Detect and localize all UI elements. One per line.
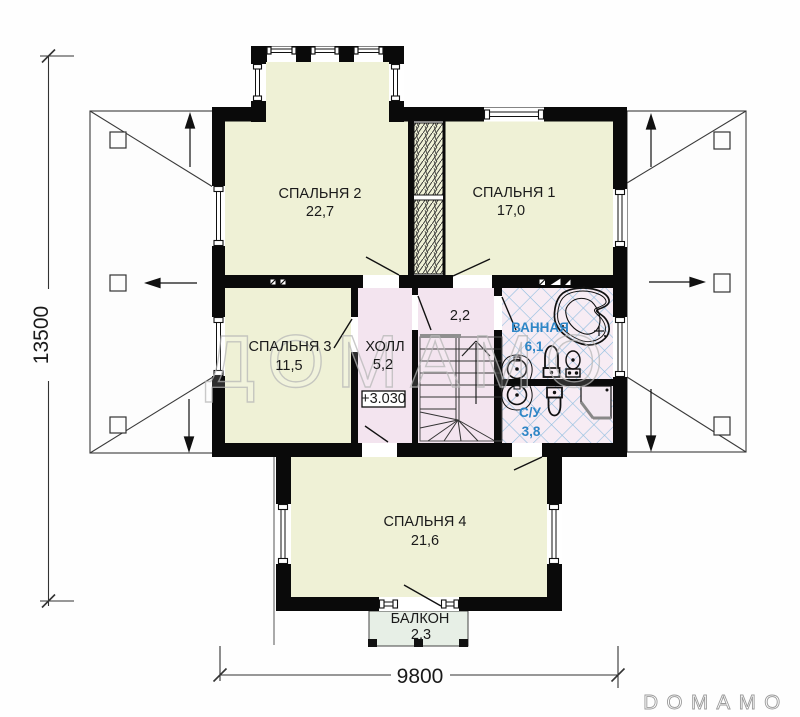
svg-text:СПАЛЬНЯ 1: СПАЛЬНЯ 1 [473, 185, 556, 201]
svg-text:+3.030: +3.030 [361, 391, 406, 407]
svg-text:БАЛКОН: БАЛКОН [391, 611, 450, 627]
svg-text:17,0: 17,0 [497, 203, 525, 219]
svg-text:6,1: 6,1 [525, 339, 544, 354]
svg-text:3,8: 3,8 [522, 424, 541, 439]
svg-text:СПАЛЬНЯ 2: СПАЛЬНЯ 2 [279, 186, 362, 202]
svg-text:С/У: С/У [519, 405, 542, 420]
svg-text:ХОЛЛ: ХОЛЛ [365, 339, 404, 355]
svg-text:2,2: 2,2 [450, 308, 470, 324]
svg-text:ВАННАЯ: ВАННАЯ [511, 320, 569, 335]
svg-text:22,7: 22,7 [306, 204, 334, 220]
svg-text:9800: 9800 [397, 665, 444, 688]
svg-text:13500: 13500 [30, 306, 53, 364]
svg-text:21,6: 21,6 [411, 533, 439, 549]
svg-text:2,3: 2,3 [411, 627, 431, 643]
svg-text:5,2: 5,2 [373, 357, 393, 373]
svg-text:11,5: 11,5 [275, 358, 302, 374]
svg-text:СПАЛЬНЯ 4: СПАЛЬНЯ 4 [384, 514, 467, 530]
svg-text:DOMAMO: DOMAMO [643, 691, 789, 714]
svg-text:СПАЛЬНЯ 3: СПАЛЬНЯ 3 [249, 339, 332, 355]
